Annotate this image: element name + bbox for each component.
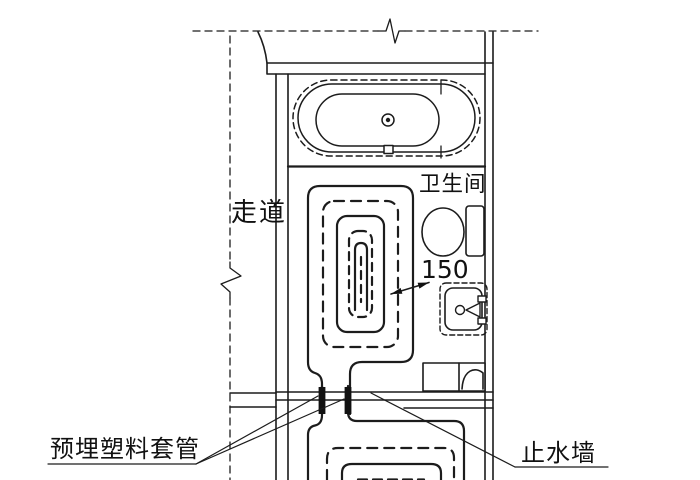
dim-arrow-left xyxy=(391,288,402,294)
label-embedded-sleeve: 预埋塑料套管 xyxy=(50,435,200,463)
corridor-centerline xyxy=(221,36,241,480)
label-water-stop-wall: 止水墙 xyxy=(521,439,596,467)
toilet-tank xyxy=(466,206,484,256)
inter-room-wall xyxy=(230,392,493,408)
toilet xyxy=(422,206,484,256)
lower-coil-inner-ring xyxy=(342,464,441,480)
toilet-bowl xyxy=(422,208,464,256)
bathtub-basin xyxy=(316,94,439,146)
floor-plan-svg: 走道 卫生间 150 预埋塑料套管 止水墙 xyxy=(0,0,700,480)
washer-body xyxy=(423,363,485,391)
faucet-knob-top xyxy=(478,296,486,302)
unit-entry-curve xyxy=(258,32,267,63)
bathtub-overflow xyxy=(384,146,393,154)
top-centerline xyxy=(193,19,538,43)
left-wall xyxy=(276,74,288,480)
wash-basin xyxy=(440,283,487,335)
faucet-knob-bottom xyxy=(478,318,486,324)
sleeve-leader-2 xyxy=(196,399,344,464)
right-wall xyxy=(485,32,493,480)
sleeve-right xyxy=(345,387,352,414)
washing-machine xyxy=(423,363,485,391)
label-bathroom: 卫生间 xyxy=(419,172,487,197)
floor-heating-plan: 走道 卫生间 150 预埋塑料套管 止水墙 xyxy=(0,0,700,480)
pipe-spacing-dimension xyxy=(391,283,429,295)
break-symbol-top xyxy=(378,19,405,43)
label-pipe-spacing: 150 xyxy=(421,255,469,284)
top-wall xyxy=(267,63,493,74)
bathtub-drain-dot xyxy=(386,118,390,122)
floor-heating-coil-upper xyxy=(308,186,413,414)
break-symbol-left xyxy=(221,262,241,298)
bathtub xyxy=(293,80,480,158)
label-corridor: 走道 xyxy=(231,198,287,228)
